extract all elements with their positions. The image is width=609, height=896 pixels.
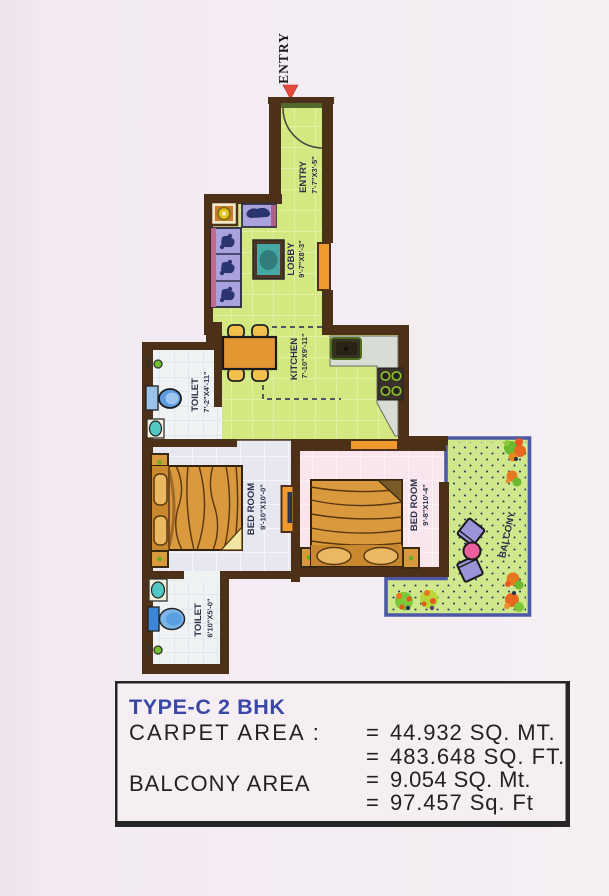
svg-text:9'-10"X10'-0": 9'-10"X10'-0" bbox=[259, 484, 268, 530]
svg-text:7'-2"X4'-11": 7'-2"X4'-11" bbox=[202, 371, 211, 413]
svg-text:9.054 SQ. Mt.: 9.054 SQ. Mt. bbox=[390, 767, 531, 792]
svg-text:ENTRY: ENTRY bbox=[298, 160, 309, 193]
svg-text:LOBBY: LOBBY bbox=[286, 242, 297, 276]
svg-text:9'-7"X8'-3": 9'-7"X8'-3" bbox=[297, 240, 306, 278]
svg-text:7'-7"X3'-5": 7'-7"X3'-5" bbox=[310, 156, 319, 194]
svg-text:KITCHEN: KITCHEN bbox=[289, 338, 300, 380]
svg-text:TOILET: TOILET bbox=[193, 603, 204, 637]
svg-text:BED ROOM: BED ROOM bbox=[246, 483, 257, 535]
svg-text:CARPET AREA :: CARPET AREA : bbox=[129, 720, 321, 745]
svg-text:BED ROOM: BED ROOM bbox=[409, 479, 420, 531]
svg-text:=: = bbox=[366, 790, 379, 815]
svg-text:7'-10"X9'-11": 7'-10"X9'-11" bbox=[300, 333, 309, 379]
svg-text:97.457 Sq. Ft: 97.457 Sq. Ft bbox=[390, 790, 534, 815]
svg-text:=: = bbox=[366, 720, 379, 745]
svg-text:9'-8"X10'-4": 9'-8"X10'-4" bbox=[421, 484, 430, 526]
svg-text:6'10"X5'-0": 6'10"X5'-0" bbox=[206, 598, 215, 637]
svg-text:BALCONY AREA: BALCONY AREA bbox=[129, 771, 311, 796]
svg-text:=: = bbox=[366, 744, 379, 769]
svg-text:TOILET: TOILET bbox=[190, 378, 201, 412]
svg-text:TYPE-C 2 BHK: TYPE-C 2 BHK bbox=[129, 695, 286, 719]
svg-text:=: = bbox=[366, 767, 379, 792]
svg-text:483.648 SQ. FT.: 483.648 SQ. FT. bbox=[390, 744, 565, 769]
svg-text:ENTRY: ENTRY bbox=[276, 32, 291, 84]
svg-text:44.932 SQ. MT.: 44.932 SQ. MT. bbox=[390, 720, 555, 745]
